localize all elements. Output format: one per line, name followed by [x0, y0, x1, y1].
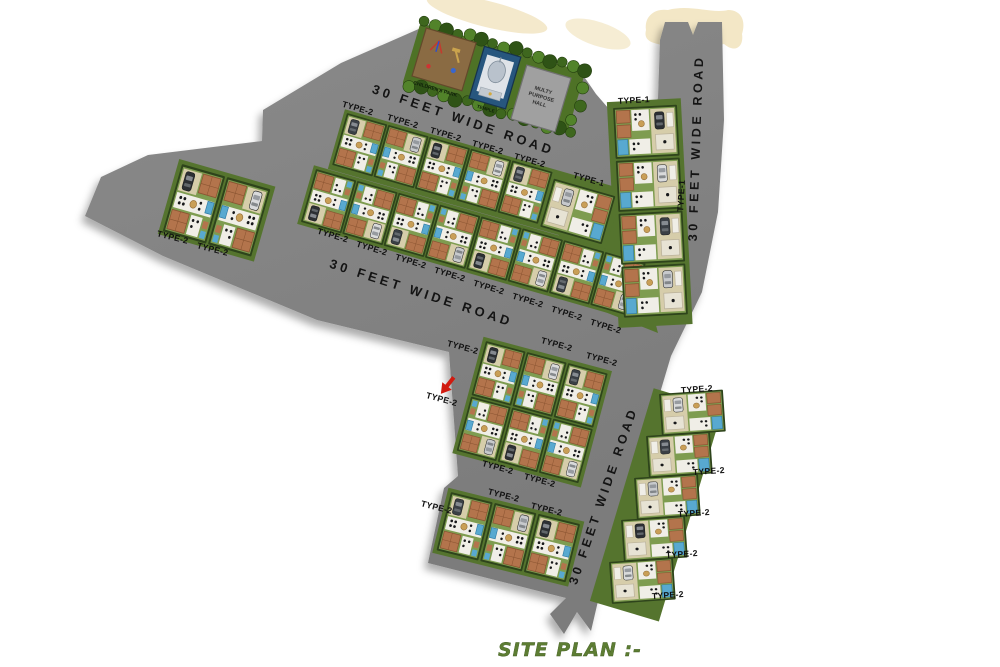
plot: [616, 158, 683, 212]
pool: [620, 192, 631, 208]
cream-blob-top-mid: [562, 12, 634, 56]
table-icon: [668, 487, 674, 493]
car-icon: [635, 524, 645, 539]
car-icon: [660, 217, 670, 235]
plot: [659, 390, 726, 436]
table-icon: [641, 173, 647, 180]
car-icon: [623, 566, 633, 581]
plot-type-label: TYPE-2: [678, 507, 711, 519]
table-icon: [638, 120, 644, 127]
car-icon: [657, 165, 667, 183]
car-icon: [663, 270, 673, 288]
table-icon: [644, 226, 650, 233]
table-icon: [693, 403, 699, 409]
plot-type-label: TYPE-2: [693, 465, 726, 477]
page-title-group: SITE PLAN :-: [498, 639, 642, 661]
pool: [712, 416, 723, 429]
car-icon: [648, 482, 658, 497]
site-plan-svg: CHILDREN'S PARK TEMPLE MULTYPURPOSEHALL: [0, 0, 1000, 667]
pool: [618, 140, 629, 156]
car-icon: [660, 440, 670, 455]
table-icon: [643, 571, 649, 577]
table-icon: [647, 279, 653, 286]
page-title: SITE PLAN :-: [498, 639, 642, 661]
pool: [623, 245, 634, 261]
table-icon: [680, 445, 686, 451]
plot: [621, 263, 688, 317]
car-icon: [654, 112, 664, 130]
plot-type-label: TYPE-1: [675, 180, 687, 212]
site-plan-canvas: CHILDREN'S PARK TEMPLE MULTYPURPOSEHALL: [0, 0, 1000, 667]
plot-type-label: TYPE-2: [652, 589, 685, 601]
plot-type-label: TYPE-1: [618, 94, 650, 106]
plot-type-label: TYPE-2: [666, 548, 699, 560]
plot: [619, 211, 686, 265]
car-icon: [673, 398, 683, 413]
plot: [613, 105, 680, 159]
table-icon: [655, 529, 661, 535]
pool: [626, 298, 637, 314]
